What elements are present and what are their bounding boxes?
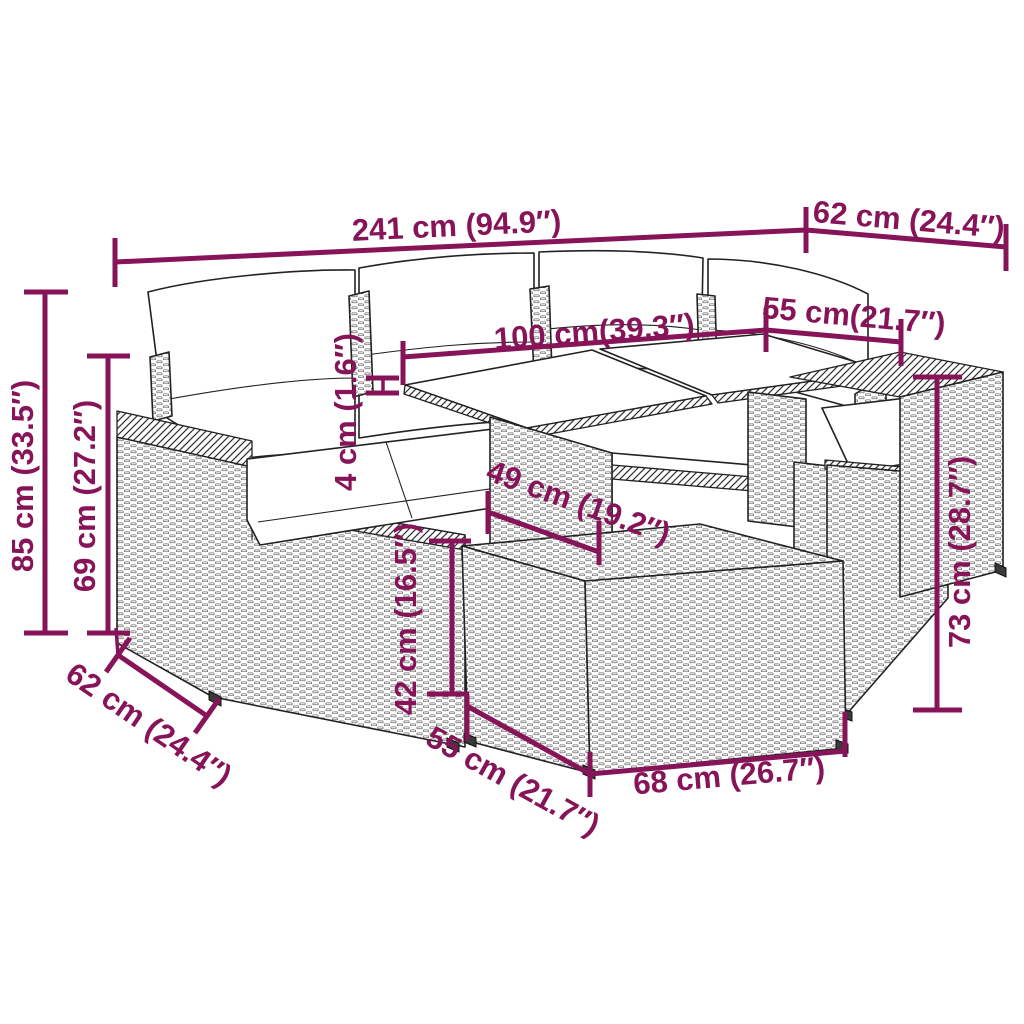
diagram-canvas: 241 cm (94.9″) 62 cm (24.4″) 100 cm(39.3… <box>0 0 1024 1024</box>
dimension-tick <box>195 699 219 733</box>
ottoman-side <box>585 561 846 773</box>
dimension-label: 69 cm (27.2″) <box>67 400 102 592</box>
dim-overall-height: 85 cm (33.5″) <box>5 292 68 633</box>
dimension-label: 4 cm (1.6″) <box>328 333 363 491</box>
dimension-label: 73 cm (28.7″) <box>942 456 977 648</box>
dimension-extension <box>116 628 118 655</box>
dimension-diagram: 241 cm (94.9″) 62 cm (24.4″) 100 cm(39.3… <box>0 0 1024 1024</box>
dimension-label: 85 cm (33.5″) <box>5 380 40 572</box>
ottoman <box>462 524 848 779</box>
dim-back-depth: 62 cm (24.4″) <box>806 194 1006 271</box>
dimension-label: 42 cm (16.5″) <box>388 523 423 715</box>
armrest-post <box>150 352 172 421</box>
